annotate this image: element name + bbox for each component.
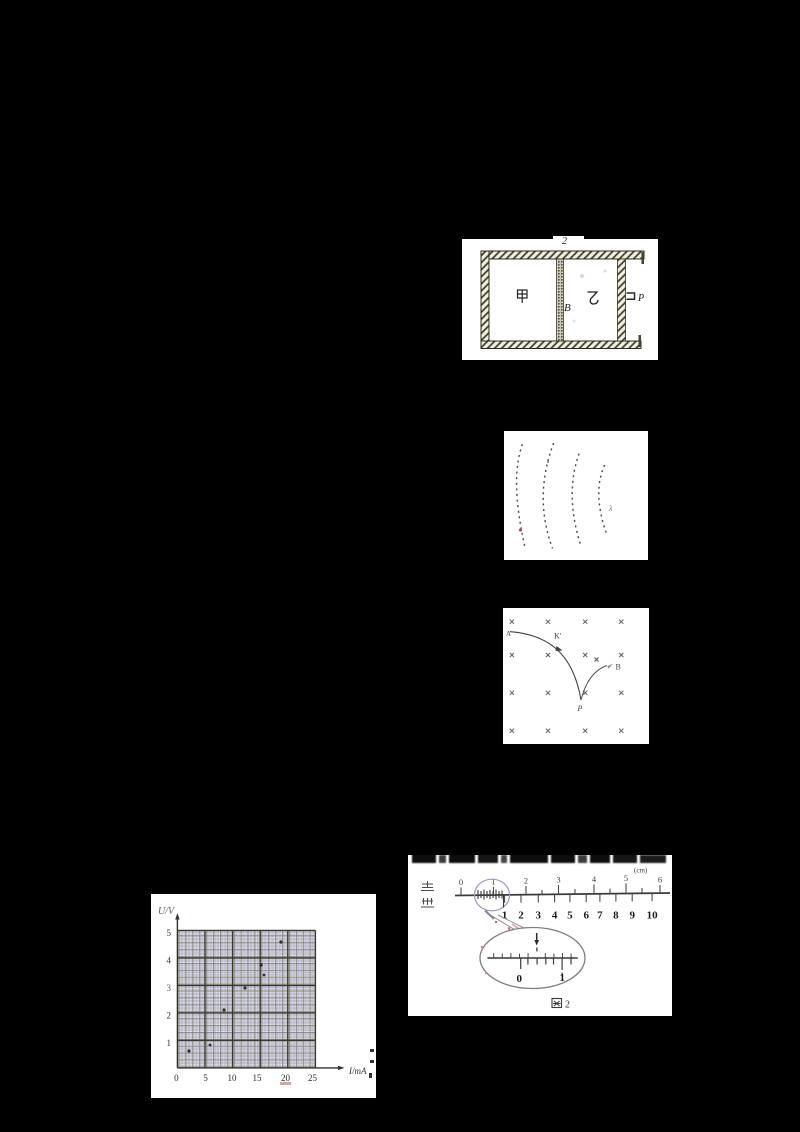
svg-text:λ: λ <box>608 504 613 513</box>
svg-text:A: A <box>506 630 511 638</box>
svg-text:0: 0 <box>174 1073 179 1083</box>
svg-text:4: 4 <box>592 874 597 884</box>
svg-text:2: 2 <box>562 236 567 247</box>
svg-text:4: 4 <box>552 910 558 922</box>
svg-text:20: 20 <box>281 1073 291 1083</box>
svg-text:10: 10 <box>228 1073 238 1083</box>
svg-text:P: P <box>577 704 583 713</box>
svg-text:3: 3 <box>536 910 542 922</box>
svg-text:0: 0 <box>517 973 523 985</box>
svg-text:5: 5 <box>567 910 573 922</box>
svg-text:2: 2 <box>565 1000 570 1011</box>
svg-text:15: 15 <box>253 1073 263 1083</box>
svg-text:2: 2 <box>518 910 524 922</box>
svg-text:3: 3 <box>556 875 560 885</box>
svg-text:2: 2 <box>524 876 528 886</box>
svg-text:5: 5 <box>203 1073 208 1083</box>
svg-text:25: 25 <box>308 1073 318 1083</box>
svg-text:1: 1 <box>167 1038 172 1048</box>
svg-text:7: 7 <box>597 910 603 922</box>
svg-text:B: B <box>564 302 571 314</box>
svg-text:10: 10 <box>647 910 659 922</box>
svg-text:K′: K′ <box>554 632 562 641</box>
svg-text:2: 2 <box>167 1011 172 1021</box>
svg-text:1: 1 <box>560 972 566 984</box>
svg-text:I/mA: I/mA <box>348 1066 367 1076</box>
svg-text:P: P <box>637 293 644 304</box>
svg-text:1: 1 <box>491 877 495 887</box>
svg-text:(cm): (cm) <box>634 867 648 875</box>
svg-text:B: B <box>616 663 621 672</box>
svg-text:3: 3 <box>167 983 172 993</box>
svg-text:6: 6 <box>583 910 589 922</box>
svg-text:8: 8 <box>613 910 619 922</box>
svg-text:0: 0 <box>459 877 463 887</box>
svg-text:5: 5 <box>624 873 628 883</box>
svg-text:9: 9 <box>629 910 635 922</box>
svg-text:6: 6 <box>658 875 662 885</box>
svg-text:4: 4 <box>167 956 172 966</box>
svg-text:U/V: U/V <box>158 906 176 917</box>
svg-text:5: 5 <box>167 928 172 938</box>
